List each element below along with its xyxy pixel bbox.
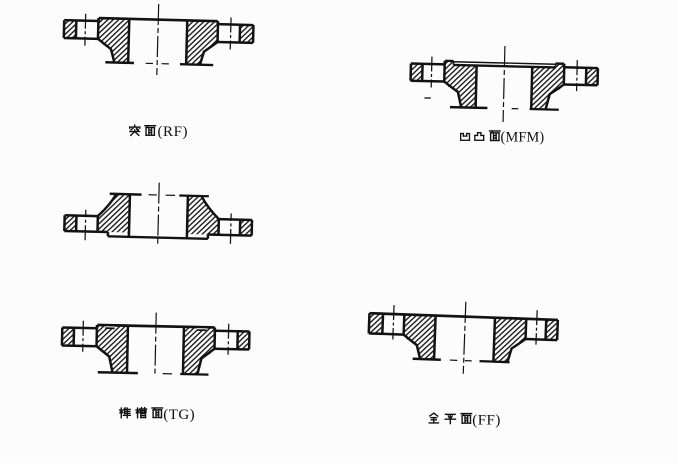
svg-text:(TG): (TG) [163, 407, 195, 423]
svg-text:(MFM): (MFM) [501, 129, 545, 145]
svg-text:(RF): (RF) [158, 124, 189, 140]
svg-text:(FF): (FF) [472, 412, 500, 428]
